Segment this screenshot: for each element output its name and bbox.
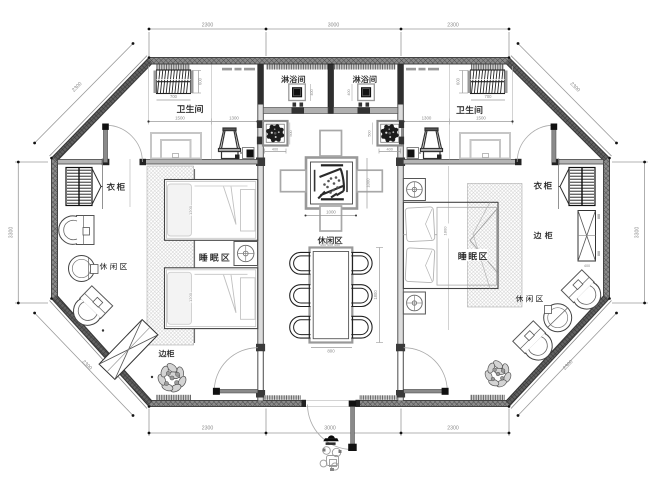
svg-text:1500: 1500 (476, 115, 486, 120)
svg-text:3300: 3300 (9, 227, 15, 239)
svg-text:400: 400 (272, 148, 278, 152)
svg-text:500: 500 (289, 130, 293, 136)
svg-text:400: 400 (584, 264, 590, 268)
svg-text:400: 400 (347, 89, 351, 95)
svg-text:600: 600 (456, 77, 461, 85)
svg-text:1200: 1200 (188, 292, 193, 302)
svg-text:600: 600 (198, 77, 203, 85)
svg-text:800: 800 (327, 349, 335, 354)
svg-text:2300: 2300 (447, 426, 459, 432)
svg-text:1800: 1800 (442, 226, 447, 236)
svg-text:1200: 1200 (188, 205, 193, 215)
svg-text:3000: 3000 (328, 23, 340, 29)
svg-text:1300: 1300 (229, 115, 239, 120)
svg-text:400: 400 (310, 89, 314, 95)
svg-text:1800: 1800 (373, 290, 378, 300)
svg-text:1500: 1500 (175, 115, 185, 120)
svg-text:1300: 1300 (422, 115, 432, 120)
svg-text:3300: 3300 (635, 227, 641, 239)
svg-text:2300: 2300 (202, 426, 214, 432)
svg-text:1000: 1000 (366, 178, 371, 188)
svg-text:3000: 3000 (324, 426, 336, 432)
svg-text:450 450 450: 450 450 450 (320, 243, 340, 247)
svg-text:400: 400 (387, 148, 393, 152)
svg-text:700: 700 (170, 94, 178, 99)
svg-text:2300: 2300 (447, 23, 459, 29)
svg-text:700: 700 (485, 94, 493, 99)
svg-text:1000: 1000 (326, 210, 336, 215)
svg-text:500: 500 (367, 130, 371, 136)
svg-text:2300: 2300 (202, 23, 214, 29)
